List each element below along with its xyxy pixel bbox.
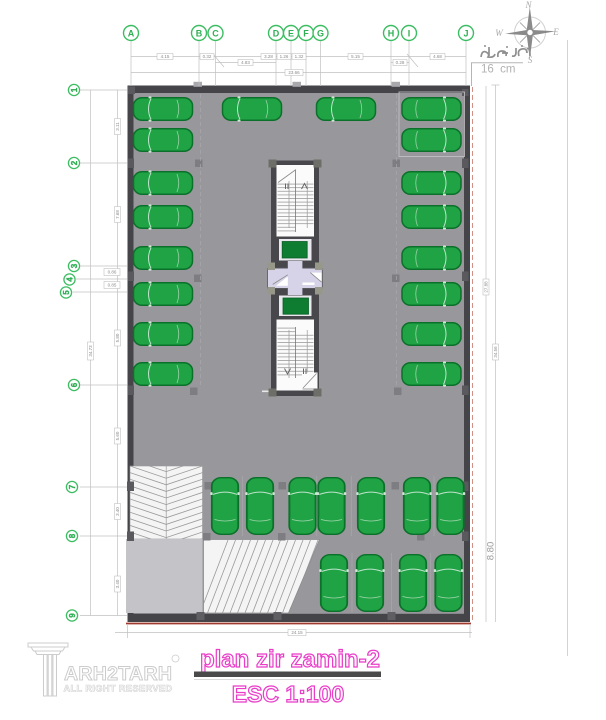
svg-text:5: 5 <box>62 290 71 295</box>
svg-text:D: D <box>273 28 280 38</box>
svg-text:8.80: 8.80 <box>486 542 497 561</box>
svg-text:E: E <box>552 27 559 37</box>
svg-text:27.88: 27.88 <box>484 281 489 293</box>
svg-text:plan zir zamin-2: plan zir zamin-2 <box>200 646 380 673</box>
svg-text:16 cm: 16 cm <box>481 64 516 76</box>
svg-text:3.11: 3.11 <box>115 122 120 131</box>
svg-text:5.80: 5.80 <box>115 333 120 342</box>
svg-text:2: 2 <box>70 160 79 165</box>
svg-text:3.28: 3.28 <box>264 54 273 59</box>
svg-text:E: E <box>288 28 294 38</box>
svg-text:5.60: 5.60 <box>115 431 120 440</box>
svg-text:4.83: 4.83 <box>241 60 250 65</box>
svg-text:ALL RIGHT RESERVED: ALL RIGHT RESERVED <box>64 684 173 694</box>
svg-text:J: J <box>463 28 468 38</box>
svg-text:0.28: 0.28 <box>396 60 405 65</box>
svg-text:1: 1 <box>70 87 79 92</box>
svg-text:24.15: 24.15 <box>291 630 303 635</box>
svg-text:G: G <box>317 28 324 38</box>
svg-text:B: B <box>196 28 203 38</box>
svg-text:4: 4 <box>65 277 74 282</box>
svg-text:N: N <box>524 0 532 10</box>
svg-text:4.68: 4.68 <box>433 54 442 59</box>
svg-text:0.86: 0.86 <box>108 270 117 275</box>
svg-text:ESC 1:100: ESC 1:100 <box>232 681 345 707</box>
svg-text:9: 9 <box>68 613 77 618</box>
svg-text:7: 7 <box>68 484 77 489</box>
svg-text:3: 3 <box>70 263 79 268</box>
svg-text:I: I <box>408 28 411 38</box>
svg-text:0.85: 0.85 <box>108 283 117 288</box>
svg-text:34.73: 34.73 <box>88 345 93 357</box>
svg-text:H: H <box>388 28 395 38</box>
svg-text:3.40: 3.40 <box>115 579 120 588</box>
svg-text:8: 8 <box>68 533 77 538</box>
svg-text:1.26: 1.26 <box>280 54 289 59</box>
svg-text:5.15: 5.15 <box>351 54 360 59</box>
svg-text:0.32: 0.32 <box>203 54 212 59</box>
svg-text:1.32: 1.32 <box>295 54 304 59</box>
svg-text:34.56: 34.56 <box>493 346 498 358</box>
svg-text:ARH2TARH: ARH2TARH <box>64 663 172 685</box>
svg-text:3.40: 3.40 <box>115 507 120 516</box>
svg-text:4.15: 4.15 <box>161 54 170 59</box>
svg-text:23.66: 23.66 <box>288 70 300 75</box>
svg-text:6: 6 <box>70 382 79 387</box>
svg-text:F: F <box>303 28 309 38</box>
svg-text:S: S <box>528 55 533 65</box>
svg-text:A: A <box>128 28 135 38</box>
svg-text:7.68: 7.68 <box>115 210 120 219</box>
svg-text:C: C <box>212 28 219 38</box>
